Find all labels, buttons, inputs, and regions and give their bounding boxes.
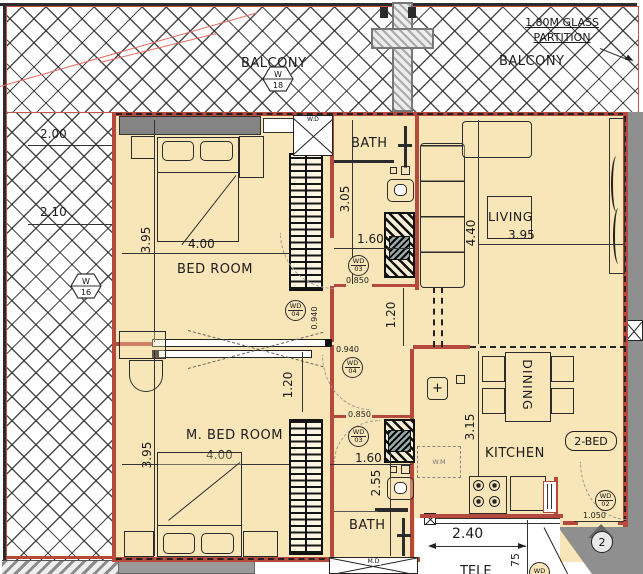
kitchen-db-box: + bbox=[427, 377, 448, 400]
mbed-nightstand-right bbox=[243, 531, 278, 557]
corridor-opening-dash-a bbox=[433, 287, 435, 347]
living-label: LIVING bbox=[488, 209, 533, 224]
bath-top-dim-hline bbox=[334, 248, 414, 249]
mbed-dresser bbox=[119, 331, 166, 359]
glass-partition-note-line1: 1.80M GLASS bbox=[512, 16, 612, 29]
bath-top-dim-depth: 3.05 bbox=[338, 177, 352, 221]
balcony-right-label: BALCONY bbox=[499, 54, 565, 69]
lobby-tele-label: TELE bbox=[460, 564, 492, 574]
bottom-wall-section-hatch bbox=[2, 560, 118, 574]
bath-top-accessory-b bbox=[401, 166, 410, 175]
lobby-wall-top bbox=[424, 518, 560, 524]
bath-bottom-accessory-b bbox=[401, 465, 410, 474]
column-shaft bbox=[392, 2, 413, 112]
bath-bottom-accessory-a bbox=[390, 466, 397, 473]
lobby-dim-arrow-left-icon bbox=[428, 543, 436, 549]
svg-text:16: 16 bbox=[81, 288, 91, 297]
balcony-dim-bottom: 2.10 bbox=[40, 205, 67, 219]
living-curtain-arc-b bbox=[613, 208, 624, 264]
balcony-dim-top: 2.00 bbox=[40, 127, 67, 141]
wall-kitchen-bottom bbox=[420, 514, 563, 518]
door-tag-wd03-top: WD03 bbox=[348, 255, 369, 276]
door-tag-wd04-b: WD04 bbox=[342, 357, 363, 378]
kitchen-counter bbox=[510, 476, 546, 511]
corridor-clear-a: 0.940 bbox=[307, 298, 321, 338]
bath-bottom-screen bbox=[375, 508, 408, 512]
kitchen-sink-unit bbox=[543, 481, 557, 513]
sink-line-a bbox=[547, 484, 548, 509]
living-dim-depth: 4.40 bbox=[464, 211, 478, 255]
wall-unit-left bbox=[112, 112, 116, 562]
stove-burner-3 bbox=[473, 496, 484, 507]
bath-bottom-sink-basin bbox=[394, 482, 407, 494]
bath-top-label: BATH bbox=[351, 136, 388, 151]
svg-text:W: W bbox=[274, 70, 282, 79]
door-tag-wd04-a: WD04 bbox=[285, 300, 306, 321]
column-anchor-right bbox=[408, 7, 416, 18]
dining-chair-3 bbox=[551, 356, 574, 382]
unit-type-badge: 2-BED bbox=[565, 431, 617, 451]
stove-burner-1 bbox=[473, 480, 484, 491]
dining-label: DINING bbox=[520, 354, 536, 416]
wall-bedroom-bath-lower bbox=[330, 286, 334, 342]
lobby-dim-depth: 75 bbox=[508, 543, 522, 574]
mbed-bed-line bbox=[158, 525, 241, 526]
corridor-dim-a: 1.20 bbox=[384, 295, 398, 335]
bedroom-pillow-right bbox=[200, 141, 233, 161]
door-tag-wd03-bottom: WD03 bbox=[348, 426, 369, 447]
bedroom-pillow-left bbox=[162, 141, 194, 161]
bath-top-door-dim: 0.850 bbox=[346, 276, 369, 285]
kitchen-dim-depth: 3.15 bbox=[463, 405, 477, 449]
bedroom-bed-line bbox=[158, 172, 238, 173]
wall-balcony-bottom bbox=[6, 556, 112, 559]
living-curtain-arc-a bbox=[611, 156, 622, 212]
mbed-pillow-left bbox=[163, 533, 195, 554]
bath-bottom-shaft-inner bbox=[388, 430, 411, 452]
lobby-dim-width: 2.40 bbox=[452, 526, 483, 542]
glass-top-dashes bbox=[116, 113, 624, 115]
bath-bottom-shower-cross bbox=[397, 534, 411, 537]
stove-burner-4 bbox=[489, 496, 500, 507]
bath-top-sink-basin bbox=[394, 184, 407, 196]
bath-bottom-door-dim: 0.850 bbox=[348, 410, 371, 419]
bedroom-balcony-slider bbox=[119, 116, 261, 135]
entry-door-dim-line bbox=[574, 521, 624, 522]
corridor-opening-dash-b bbox=[441, 287, 443, 347]
dining-chair-2 bbox=[482, 388, 505, 414]
balcony-dim-top-line bbox=[28, 145, 112, 146]
living-dim-hline bbox=[478, 244, 625, 245]
svg-text:W: W bbox=[82, 277, 90, 286]
mbed-wardrobe bbox=[289, 419, 323, 555]
bedroom-label: BED ROOM bbox=[177, 262, 253, 277]
bath-top-shower-bar bbox=[404, 126, 407, 168]
bath-top-dim-width: 1.60 bbox=[357, 232, 384, 246]
bedroom-nightstand-right bbox=[239, 136, 264, 178]
bath-bottom-divider bbox=[334, 511, 378, 512]
dining-chair-4 bbox=[551, 388, 574, 414]
entry-unit-number-marker: 2 bbox=[591, 531, 613, 553]
window-marker-w18-icon: W 18 bbox=[262, 66, 294, 92]
md-duct-box: M.D bbox=[329, 557, 418, 574]
bedroom-shelf bbox=[263, 118, 296, 133]
bath-bottom-label: BATH bbox=[349, 518, 386, 533]
sliding-panel-upper bbox=[152, 339, 332, 347]
living-sofa-long bbox=[420, 143, 465, 288]
wd-duct-box: W.D bbox=[293, 115, 333, 156]
lobby-wall-right bbox=[527, 520, 528, 574]
dining-top-dashes bbox=[470, 346, 626, 348]
mbed-pillow-right bbox=[201, 533, 234, 554]
bedroom-dim-depth: 3.95 bbox=[139, 220, 153, 260]
corridor-clear-b: 0.940 bbox=[336, 345, 359, 354]
corridor-dim-b: 1.20 bbox=[281, 365, 295, 405]
corridor-dim-vline-b bbox=[302, 352, 303, 412]
bath-top-shower-cross bbox=[398, 144, 412, 147]
balcony-dim-bottom-line bbox=[28, 224, 112, 225]
living-dim-width: 3.95 bbox=[508, 228, 535, 242]
living-dim-vline bbox=[478, 120, 479, 344]
door-tag-wd02: WD02 bbox=[595, 490, 616, 511]
washing-machine-box: W.M bbox=[417, 446, 461, 478]
bedroom-nightstand-left bbox=[131, 136, 155, 159]
bath-bottom-dim-depth: 2.55 bbox=[369, 463, 383, 503]
bottom-balcony-threshold bbox=[118, 561, 255, 574]
sink-line-b bbox=[551, 484, 552, 509]
bath-top-screen bbox=[334, 160, 394, 163]
wall-bath-living bbox=[415, 116, 419, 290]
bath-top-accessory-a bbox=[390, 167, 397, 174]
bath-bottom-shower-bar bbox=[402, 518, 405, 556]
living-sofa-chaise bbox=[462, 121, 532, 158]
corridor-dim-vline bbox=[403, 288, 404, 346]
floor-plan-canvas: BALCONY BALCONY 1.80M GLASS PARTITION W … bbox=[0, 0, 643, 574]
kitchen-label: KITCHEN bbox=[485, 446, 545, 461]
dining-chair-1 bbox=[482, 356, 505, 382]
glass-partition-note-line2: PARTITION bbox=[512, 31, 612, 44]
mbed-label: M. BED ROOM bbox=[186, 428, 283, 443]
window-marker-w16-icon: W 16 bbox=[70, 273, 102, 299]
panel-end-cap bbox=[325, 339, 332, 346]
mbed-dim-vline bbox=[154, 350, 155, 556]
kitchen-switch-box bbox=[456, 375, 465, 384]
balcony-left-hatch bbox=[6, 112, 114, 562]
outside-right-strip bbox=[628, 112, 643, 574]
entry-door-dim: 1.050 bbox=[583, 511, 606, 520]
stove-burner-2 bbox=[489, 480, 500, 491]
mbed-nightstand-left bbox=[124, 531, 154, 557]
column-anchor-left bbox=[380, 7, 388, 18]
bedroom-dim-width: 4.00 bbox=[188, 237, 215, 251]
column-cross-arm bbox=[371, 28, 434, 49]
svg-text:18: 18 bbox=[273, 81, 283, 90]
bedroom-dim-vline bbox=[154, 120, 155, 342]
mbed-dim-depth: 3.95 bbox=[140, 435, 154, 475]
